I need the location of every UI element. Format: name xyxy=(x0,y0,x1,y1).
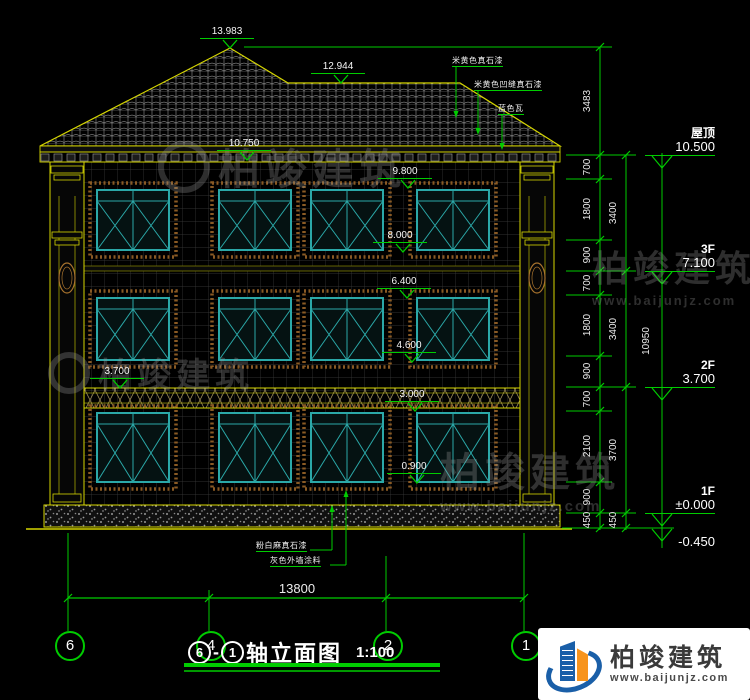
elevation-marker: 6.400 xyxy=(377,276,431,299)
dim-value: 450 xyxy=(582,498,594,542)
slab-3f xyxy=(56,266,544,271)
dim-value: 3483 xyxy=(582,79,594,123)
cad-elevation-drawing: 柏竣建筑 柏竣建筑 柏竣建筑 www.baijunjz.com 柏竣建筑 www… xyxy=(0,0,750,700)
level-value: 10.500 xyxy=(645,140,715,154)
elevation-value: 8.000 xyxy=(373,230,427,243)
elevation-value: 3.000 xyxy=(385,389,439,402)
watermark-logo-icon xyxy=(158,141,210,193)
material-label: 米黄色凹缝真石漆 xyxy=(474,80,542,91)
elevation-triangle-icon xyxy=(407,402,423,412)
elevation-marker: 13.983 xyxy=(200,26,254,49)
elevation-marker: 4.600 xyxy=(382,340,436,363)
dim-value: 3400 xyxy=(608,191,620,235)
material-label: 米黄色真石漆 xyxy=(452,56,503,67)
level-flag-3f: 3F 7.100 xyxy=(645,243,715,272)
elevation-marker: 0.900 xyxy=(387,461,441,484)
watermark: 柏竣建筑 xyxy=(158,136,406,197)
elevation-value: 9.800 xyxy=(378,166,432,179)
elevation-triangle-icon xyxy=(222,39,238,49)
elevation-marker: 8.000 xyxy=(373,230,427,253)
elevation-value: 12.944 xyxy=(311,61,365,74)
elevation-triangle-icon xyxy=(333,74,349,84)
title-dash: - xyxy=(213,642,219,663)
elevation-marker: 12.944 xyxy=(311,61,365,84)
level-value: 3.700 xyxy=(645,372,715,386)
pilaster-left xyxy=(50,162,84,505)
title-scale: 1:100 xyxy=(356,644,394,661)
elevation-value: 4.600 xyxy=(382,340,436,353)
dim-value: 3700 xyxy=(608,428,620,472)
elevation-triangle-icon xyxy=(112,379,128,389)
level-flag-ground: -0.450 xyxy=(645,534,715,549)
watermark: 柏竣建筑 xyxy=(48,348,254,397)
level-value: ±0.000 xyxy=(645,498,715,512)
elevation-value: 3.700 xyxy=(90,366,144,379)
dim-value: 1800 xyxy=(582,303,594,347)
dim-value: 1800 xyxy=(582,187,594,231)
level-flag-2f: 2F 3.700 xyxy=(645,359,715,388)
dim-value: 700 xyxy=(582,377,594,421)
elevation-triangle-icon xyxy=(239,151,255,161)
axis-from-bubble: 6 xyxy=(188,641,211,664)
title-underline xyxy=(184,663,440,667)
elevation-triangle-icon xyxy=(404,353,420,363)
level-flag-1f: 1F ±0.000 xyxy=(645,485,715,514)
axis-bubble: 1 xyxy=(511,631,541,661)
elevation-marker: 3.700 xyxy=(90,366,144,389)
elevation-triangle-icon xyxy=(400,179,416,189)
watermark-logo-icon xyxy=(48,352,90,394)
axis-bubble: 6 xyxy=(55,631,85,661)
elevation-marker: 3.000 xyxy=(385,389,439,412)
title-underline-thin xyxy=(184,670,440,672)
dim-value: 3400 xyxy=(608,307,620,351)
axis-to-bubble: 1 xyxy=(221,641,244,664)
dim-value: 450 xyxy=(608,498,620,542)
elevation-value: 0.900 xyxy=(387,461,441,474)
elevation-triangle-icon xyxy=(409,474,425,484)
dim-value: 700 xyxy=(582,145,594,189)
elevation-value: 6.400 xyxy=(377,276,431,289)
material-label: 粉白麻真石漆 xyxy=(256,541,307,552)
elevation-triangle-icon xyxy=(399,289,415,299)
logo-name: 柏竣建筑 xyxy=(610,644,729,672)
logo-site: www.baijunjz.com xyxy=(610,672,729,684)
level-value: -0.450 xyxy=(678,534,715,549)
elevation-value: 13.983 xyxy=(200,26,254,39)
elevation-value: 10.750 xyxy=(217,138,271,151)
company-logo: 柏竣建筑 www.baijunjz.com xyxy=(538,628,750,700)
dim-value-total: 10950 xyxy=(641,319,653,363)
elevation-marker: 9.800 xyxy=(378,166,432,189)
logo-building-icon xyxy=(544,634,602,694)
elevation-triangle-icon xyxy=(395,243,411,253)
material-label: 蓝色瓦 xyxy=(498,104,524,115)
level-flag-roof: 屋顶 10.500 xyxy=(645,127,715,156)
material-label: 灰色外墙涂料 xyxy=(270,556,321,567)
level-value: 7.100 xyxy=(645,256,715,270)
dim-value: 2100 xyxy=(582,424,594,468)
dim-value-bottom-total: 13800 xyxy=(262,581,332,596)
dim-value: 700 xyxy=(582,261,594,305)
elevation-marker: 10.750 xyxy=(217,138,271,161)
